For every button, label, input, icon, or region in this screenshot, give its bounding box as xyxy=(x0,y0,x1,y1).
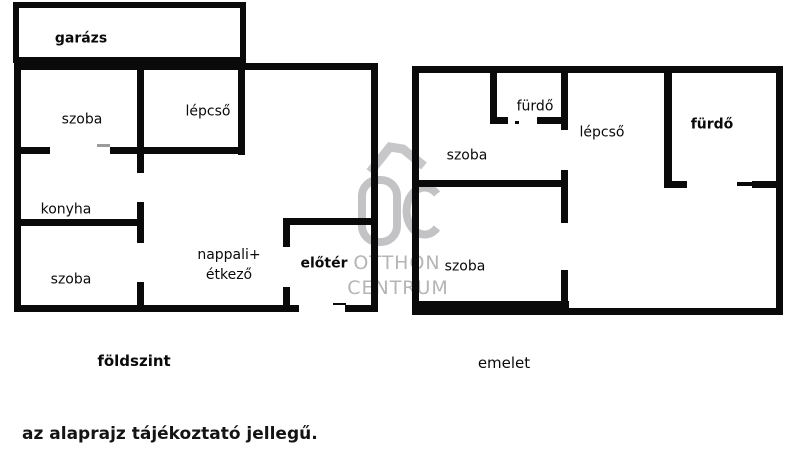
wall-bedroom-stairs-bottom xyxy=(110,147,245,154)
entrance-threshold-line xyxy=(333,303,346,305)
wall-bathroom-large-bottom-left xyxy=(664,181,687,188)
wall-bedrooms-divider xyxy=(419,180,568,187)
room-label-upper-bedroom-bottom: szoba xyxy=(445,259,486,276)
room-label-stairs: lépcső xyxy=(186,104,231,121)
wall-bedroom-right xyxy=(137,282,144,312)
room-label-bathroom-small: fürdő xyxy=(517,99,554,116)
room-label-upper-stairs: lépcső xyxy=(580,125,625,142)
wall-stairs-left-middle xyxy=(561,170,568,223)
room-label-upper-bedroom-top: szoba xyxy=(447,148,488,165)
door-hinge-mark xyxy=(515,121,519,124)
room-label-bathroom-large: fürdő xyxy=(691,117,734,134)
garage-outline-wall xyxy=(13,2,246,63)
wall-bedroom-bottom-left xyxy=(14,147,50,154)
wall-bedroom-stairs-divider xyxy=(137,63,144,173)
wall-bathroom-large-left xyxy=(664,66,672,188)
floor-plan-page: { "page": { "disclaimer": "az alaprajz t… xyxy=(0,0,795,449)
wall-bathroom-large-bottom-right xyxy=(752,181,783,188)
disclaimer-text: az alaprajz tájékoztató jellegű. xyxy=(22,424,318,444)
wall-foyer-left-upper xyxy=(283,218,290,247)
living-room-label-line1: nappali+ xyxy=(197,245,260,265)
wall-bathroom-small-bottom-left xyxy=(490,117,508,124)
wall-foyer-left-lower xyxy=(283,287,290,312)
wall-foyer-top xyxy=(283,218,378,225)
floor-caption-ground: földszint xyxy=(97,352,170,370)
living-room-label-line2: étkező xyxy=(197,265,260,285)
room-label-living-dining: nappali+ étkező xyxy=(197,245,260,285)
bathroom-door-threshold xyxy=(737,182,753,186)
room-label-foyer: előtér xyxy=(300,256,347,273)
room-label-kitchen: konyha xyxy=(41,202,92,219)
entrance-door-opening xyxy=(299,304,345,313)
wall-stairs-left-upper xyxy=(561,66,568,130)
room-label-bedroom-top: szoba xyxy=(62,112,103,129)
wall-stairs-right xyxy=(238,63,245,155)
floor-caption-upper: emelet xyxy=(478,354,530,372)
door-swing-mark xyxy=(97,144,110,147)
room-label-garage: garázs xyxy=(55,31,107,48)
room-label-bedroom-bottom: szoba xyxy=(51,272,92,289)
wall-bedroom-bottom-inner xyxy=(419,301,569,309)
wall-bathroom-small-left xyxy=(490,66,497,122)
wall-kitchen-bottom xyxy=(14,219,144,226)
upper-floor-outer-wall xyxy=(412,66,783,315)
